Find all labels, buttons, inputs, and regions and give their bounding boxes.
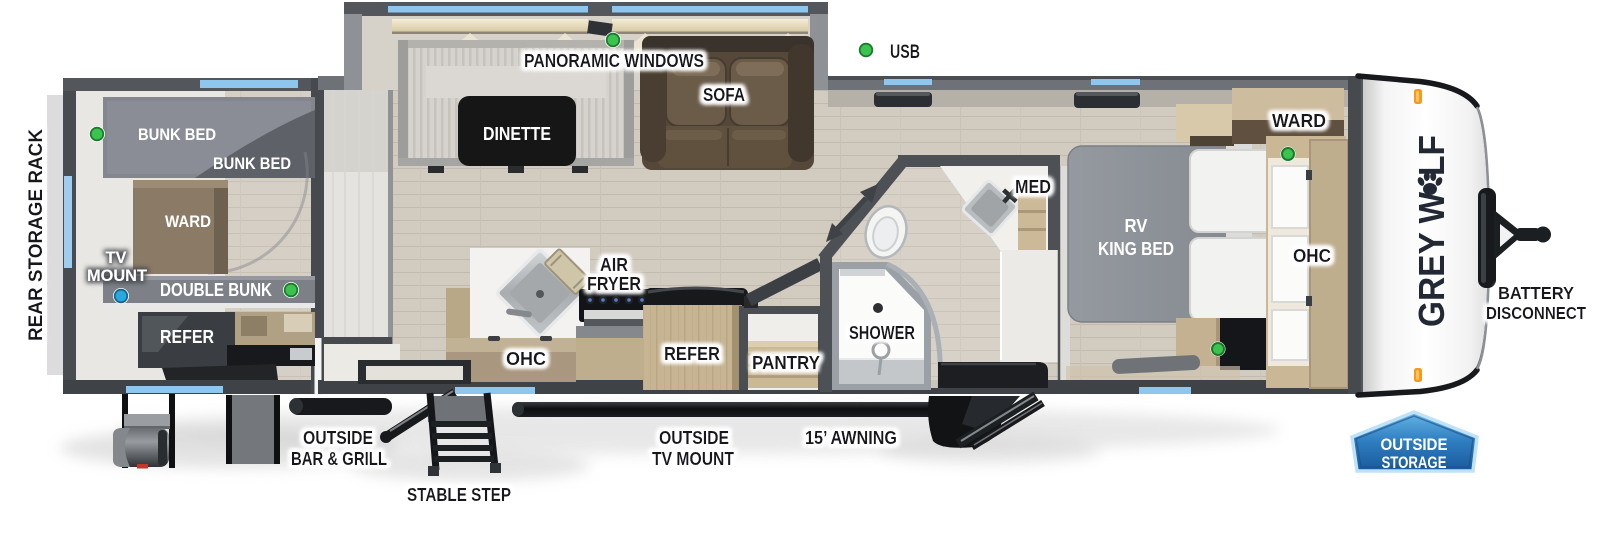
svg-text:BUNK BED: BUNK BED: [138, 125, 216, 144]
svg-text:OUTSIDE: OUTSIDE: [303, 428, 373, 448]
svg-text:DOUBLE BUNK: DOUBLE BUNK: [160, 280, 272, 300]
svg-text:KING BED: KING BED: [1098, 239, 1174, 259]
svg-text:OHC: OHC: [506, 349, 546, 369]
svg-text:15’ AWNING: 15’ AWNING: [805, 428, 897, 448]
svg-text:OUTSIDE: OUTSIDE: [659, 428, 729, 448]
svg-text:DINETTE: DINETTE: [483, 124, 551, 144]
svg-text:TV MOUNT: TV MOUNT: [652, 449, 734, 469]
svg-text:OHC: OHC: [1293, 246, 1331, 266]
svg-text:OUTSIDE: OUTSIDE: [1381, 435, 1448, 454]
svg-text:SHOWER: SHOWER: [849, 323, 915, 343]
svg-text:AIR: AIR: [600, 255, 628, 275]
svg-text:TV: TV: [106, 248, 128, 267]
svg-text:STORAGE: STORAGE: [1382, 453, 1447, 472]
svg-text:BATTERY: BATTERY: [1498, 283, 1574, 303]
svg-text:REFER: REFER: [664, 344, 720, 364]
svg-text:MED: MED: [1015, 177, 1051, 197]
svg-text:PANORAMIC WINDOWS: PANORAMIC WINDOWS: [524, 51, 704, 71]
svg-text:SOFA: SOFA: [703, 85, 745, 105]
svg-text:MOUNT: MOUNT: [87, 266, 148, 285]
svg-text:USB: USB: [890, 42, 920, 63]
svg-text:BUNK BED: BUNK BED: [213, 154, 291, 173]
svg-text:PANTRY: PANTRY: [752, 353, 820, 373]
svg-text:STABLE STEP: STABLE STEP: [407, 485, 511, 505]
svg-text:REFER: REFER: [160, 327, 214, 347]
svg-text:GREY W: GREY W: [1411, 192, 1452, 327]
svg-text:RV: RV: [1125, 216, 1148, 236]
svg-text:LF: LF: [1411, 135, 1452, 176]
svg-text:BAR & GRILL: BAR & GRILL: [291, 449, 387, 469]
svg-text:WARD: WARD: [1272, 111, 1326, 131]
svg-text:FRYER: FRYER: [587, 274, 641, 294]
svg-text:WARD: WARD: [165, 212, 211, 231]
svg-text:REAR STORAGE RACK: REAR STORAGE RACK: [26, 129, 47, 341]
svg-text:DISCONNECT: DISCONNECT: [1486, 303, 1586, 323]
